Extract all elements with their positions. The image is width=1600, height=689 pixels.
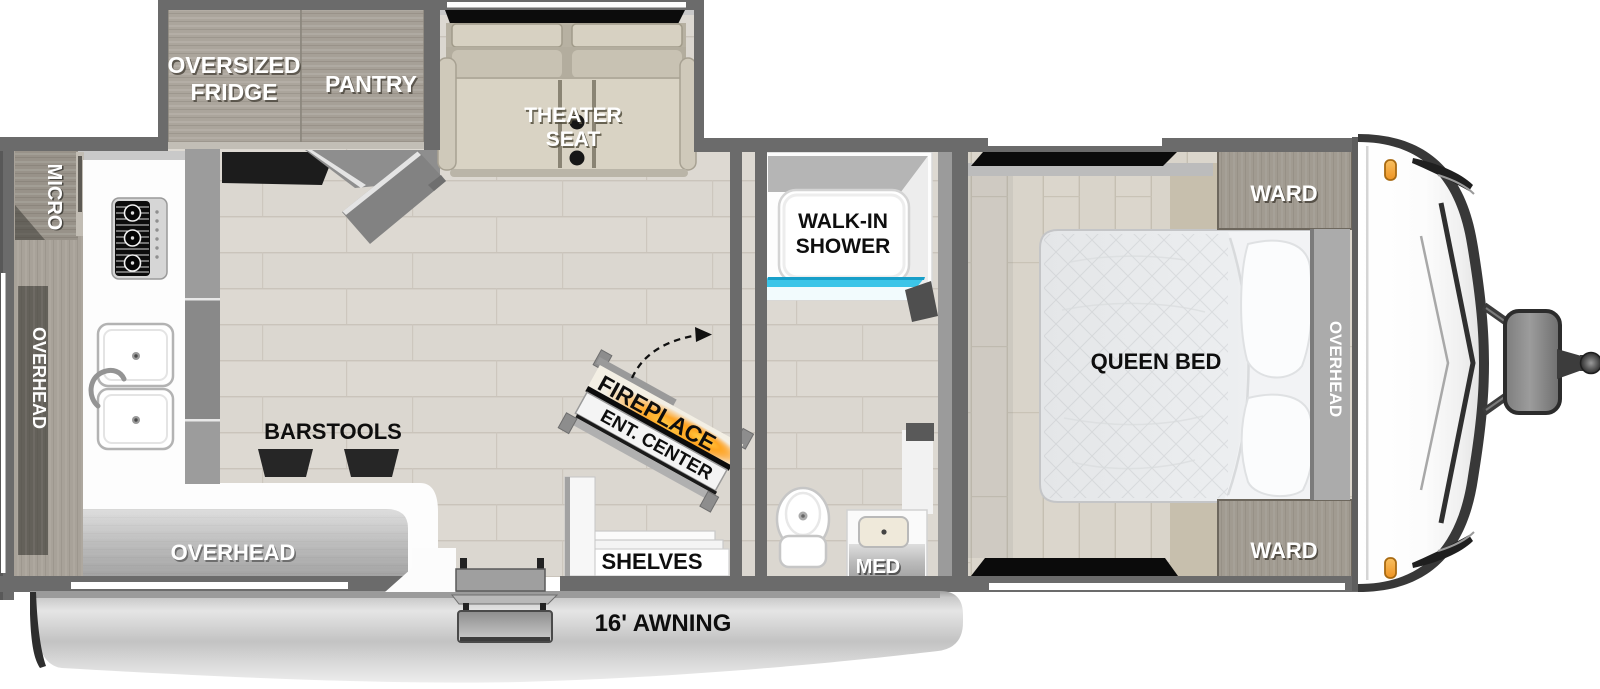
svg-text:OVERHEAD: OVERHEAD <box>1326 321 1345 417</box>
svg-text:THEATER: THEATER <box>524 104 622 127</box>
svg-text:OVERHEAD: OVERHEAD <box>171 540 296 565</box>
svg-text:16' AWNING: 16' AWNING <box>595 610 732 637</box>
svg-text:PANTRY: PANTRY <box>325 71 417 97</box>
svg-text:SHOWER: SHOWER <box>796 235 891 258</box>
svg-text:WALK-IN: WALK-IN <box>798 210 888 233</box>
svg-text:OVERHEAD: OVERHEAD <box>29 327 49 429</box>
svg-text:MICRO: MICRO <box>43 164 65 231</box>
svg-text:WARD: WARD <box>1250 538 1317 563</box>
svg-text:SHELVES: SHELVES <box>601 549 702 574</box>
svg-text:MED: MED <box>856 556 900 578</box>
svg-text:OVERSIZED: OVERSIZED <box>168 52 301 78</box>
svg-text:BARSTOOLS: BARSTOOLS <box>264 419 402 444</box>
svg-text:FRIDGE: FRIDGE <box>191 79 278 105</box>
svg-text:WARD: WARD <box>1250 181 1317 206</box>
svg-text:SEAT: SEAT <box>546 128 601 151</box>
svg-text:QUEEN BED: QUEEN BED <box>1091 349 1222 374</box>
